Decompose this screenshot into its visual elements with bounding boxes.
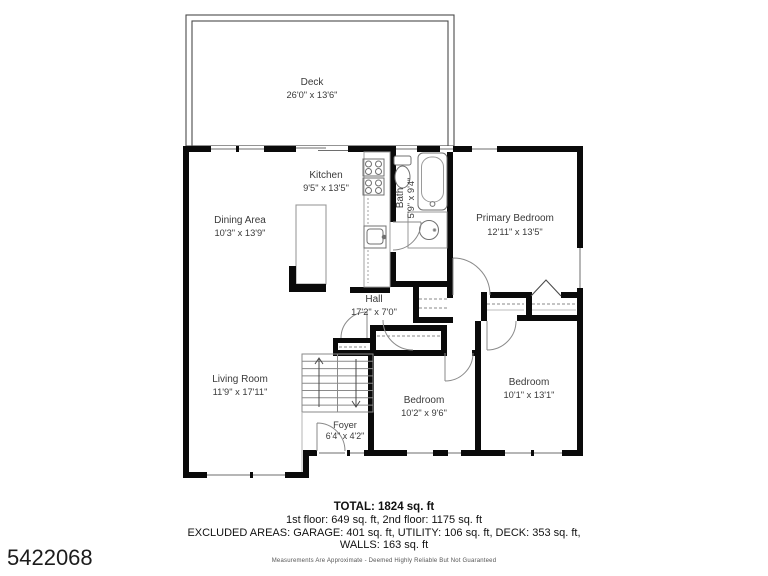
kitchen-sink-icon	[364, 226, 386, 248]
room-label-living-room: Living Room 11'9" x 17'11"	[212, 374, 268, 397]
room-label-foyer: Foyer 6'4" x 4'2"	[326, 420, 364, 441]
svg-text:9'5" x 13'5": 9'5" x 13'5"	[303, 183, 349, 193]
svg-text:10'2" x 9'6": 10'2" x 9'6"	[401, 408, 447, 418]
total-area-text: TOTAL: 1824 sq. ft	[0, 501, 768, 514]
svg-text:5'9" x 9'4": 5'9" x 9'4"	[406, 178, 416, 219]
svg-text:Deck: Deck	[301, 77, 325, 88]
svg-text:10'3" x 13'9": 10'3" x 13'9"	[215, 228, 266, 238]
svg-text:17'2" x 7'0": 17'2" x 7'0"	[351, 307, 397, 317]
svg-text:Primary Bedroom: Primary Bedroom	[476, 213, 554, 224]
svg-text:Hall: Hall	[365, 294, 382, 305]
area-summary: TOTAL: 1824 sq. ft 1st floor: 649 sq. ft…	[0, 501, 768, 552]
svg-text:Foyer: Foyer	[333, 420, 357, 430]
svg-text:Living Room: Living Room	[212, 374, 268, 385]
floor-plan-drawing: Deck 26'0" x 13'6" Kitchen 9'5" x 13'5" …	[0, 0, 768, 576]
svg-text:12'11" x 13'5": 12'11" x 13'5"	[487, 227, 542, 237]
disclaimer-text: Measurements Are Approximate - Deemed Hi…	[0, 558, 768, 564]
room-label-dining-area: Dining Area 10'3" x 13'9"	[214, 215, 266, 238]
kitchen-counter	[364, 152, 390, 287]
room-label-deck: Deck 26'0" x 13'6"	[287, 77, 338, 100]
listing-id: 5422068	[7, 545, 93, 571]
room-label-bedroom-right: Bedroom 10'1" x 13'1"	[504, 377, 555, 400]
kitchen-island	[289, 205, 326, 292]
svg-text:Dining Area: Dining Area	[214, 215, 266, 226]
floorplan-page: Deck 26'0" x 13'6" Kitchen 9'5" x 13'5" …	[0, 0, 768, 576]
room-label-primary-bedroom: Primary Bedroom 12'11" x 13'5"	[476, 213, 554, 237]
svg-text:26'0" x 13'6": 26'0" x 13'6"	[287, 90, 338, 100]
svg-text:Bedroom: Bedroom	[509, 377, 550, 388]
room-label-bedroom-center: Bedroom 10'2" x 9'6"	[401, 395, 447, 418]
svg-text:Bath: Bath	[395, 188, 406, 209]
svg-text:10'1" x 13'1": 10'1" x 13'1"	[504, 390, 555, 400]
bathtub-icon	[418, 153, 447, 210]
svg-text:11'9" x 17'11": 11'9" x 17'11"	[213, 387, 268, 397]
excluded-areas-text: EXCLUDED AREAS: GARAGE: 401 sq. ft, UTIL…	[0, 527, 768, 540]
room-label-hall: Hall 17'2" x 7'0"	[351, 294, 397, 317]
primary-closet-doors	[531, 280, 561, 296]
floor-areas-text: 1st floor: 649 sq. ft, 2nd floor: 1175 s…	[0, 514, 768, 527]
svg-text:Kitchen: Kitchen	[309, 170, 342, 181]
room-label-kitchen: Kitchen 9'5" x 13'5"	[303, 170, 349, 193]
svg-text:6'4" x 4'2": 6'4" x 4'2"	[326, 431, 364, 441]
svg-text:Bedroom: Bedroom	[404, 395, 445, 406]
walls-area-text: WALLS: 163 sq. ft	[0, 539, 768, 552]
